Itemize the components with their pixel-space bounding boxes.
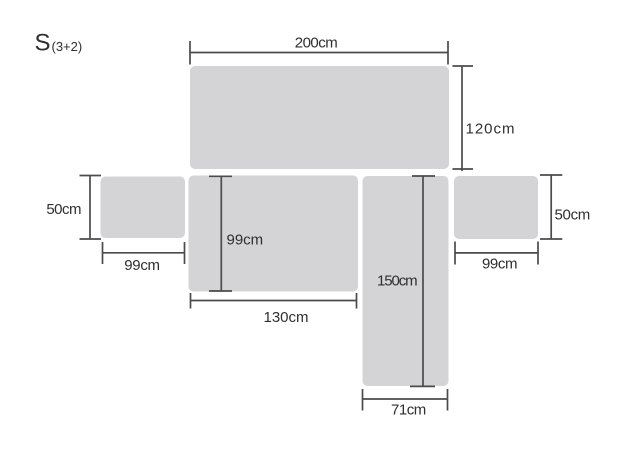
svg-text:150cm: 150cm — [377, 273, 417, 290]
svg-text:S: S — [35, 30, 51, 57]
svg-text:130cm: 130cm — [263, 309, 308, 326]
svg-text:50cm: 50cm — [46, 201, 81, 218]
svg-text:99cm: 99cm — [482, 256, 517, 273]
svg-text:(3+2): (3+2) — [52, 39, 83, 54]
svg-text:200cm: 200cm — [295, 35, 338, 52]
svg-text:99cm: 99cm — [124, 257, 159, 274]
svg-text:120cm: 120cm — [466, 121, 516, 138]
svg-text:71cm: 71cm — [391, 402, 426, 419]
svg-text:50cm: 50cm — [555, 207, 590, 224]
svg-text:99cm: 99cm — [227, 232, 264, 249]
